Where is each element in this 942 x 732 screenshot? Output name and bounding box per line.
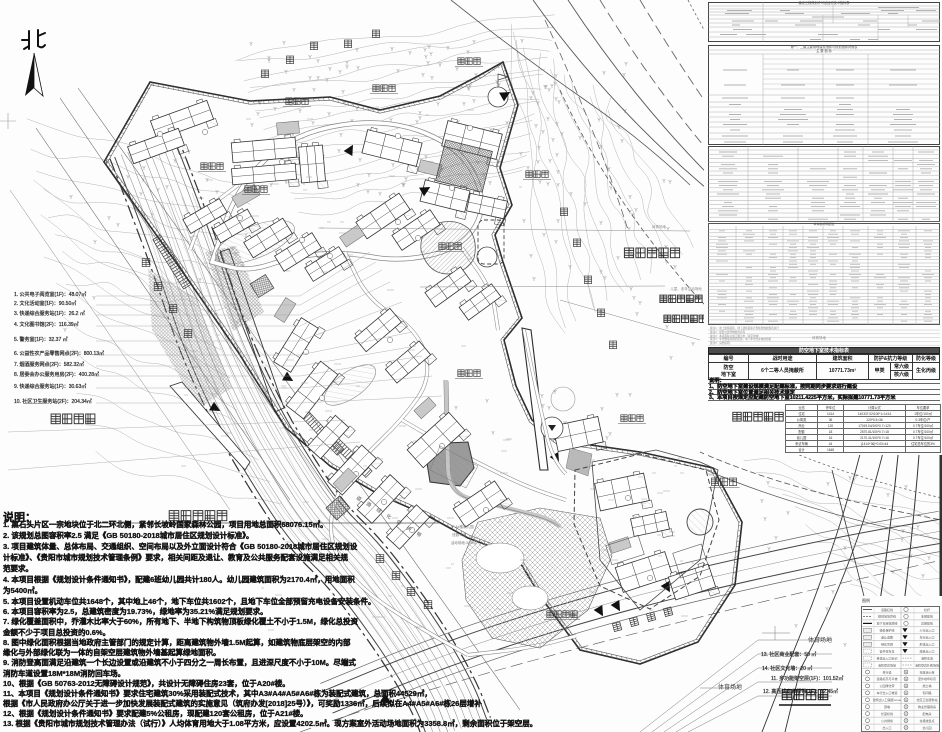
- svg-text:人行出入口: 人行出入口: [919, 628, 934, 633]
- svg-text:G: G: [905, 692, 907, 695]
- svg-text:道路标高与平坡: 道路标高与平坡: [876, 676, 897, 681]
- svg-text:G: G: [905, 713, 907, 716]
- svg-text:长度标线: 长度标线: [881, 711, 893, 716]
- svg-text:体育场地: 体育场地: [718, 683, 742, 691]
- svg-text:建筑出入口: 建筑出入口: [919, 648, 934, 653]
- svg-text:规划地块界线: 规划地块界线: [878, 614, 896, 619]
- svg-text:活动场地:3400㎡: 活动场地:3400㎡: [451, 540, 478, 545]
- svg-text:G: G: [905, 706, 907, 709]
- svg-text:出入口: 出入口: [882, 725, 891, 730]
- svg-text:G: G: [905, 678, 907, 681]
- svg-text:垃圾收集点: 垃圾收集点: [919, 718, 934, 723]
- svg-text:室外地坪标高: 室外地坪标高: [918, 676, 936, 681]
- svg-text:儿童、老年活动场地: 儿童、老年活动场地: [670, 286, 702, 291]
- svg-text:市政消火栓: 市政消火栓: [919, 669, 934, 674]
- svg-text:退让道路: 退让道路: [881, 635, 893, 640]
- svg-text:公园绿化带: 公园绿化带: [879, 683, 894, 688]
- svg-text:体育场地: 体育场地: [808, 636, 832, 644]
- svg-text:挡土墙: 挡土墙: [922, 683, 931, 688]
- svg-text:轻轨保护线: 轻轨保护线: [879, 628, 894, 633]
- svg-text:多层建筑: 多层建筑: [921, 614, 933, 619]
- svg-text:公共绿㊙: 公共绿㊙: [881, 718, 893, 723]
- svg-text:窗井停车位: 窗井停车位: [879, 648, 894, 653]
- svg-text:围墙: 围墙: [884, 704, 890, 709]
- svg-text:道路红线: 道路红线: [881, 607, 893, 612]
- svg-text:体育场地: 体育场地: [652, 224, 666, 229]
- svg-text:社区卫生服务站: 社区卫生服务站: [916, 697, 937, 702]
- svg-text:车行出入口: 车行出入口: [919, 635, 934, 640]
- svg-text:车行出入口坡道: 车行出入口坡道: [876, 690, 897, 695]
- svg-text:带: 带: [415, 531, 422, 539]
- svg-text:班数:6班: 班数:6班: [452, 532, 466, 537]
- svg-text:消防车道: 消防车道: [921, 655, 933, 660]
- svg-text:配电房: 配电房: [922, 711, 931, 716]
- svg-text:绿化景观: 绿化景观: [881, 642, 893, 647]
- svg-text:消防登高场地: 消防登高场地: [878, 662, 896, 667]
- svg-text:宅间路: 宅间路: [922, 690, 931, 695]
- svg-text:2F A#楼幼儿园: 2F A#楼幼儿园: [450, 524, 474, 529]
- svg-text:建筑出入口铺装площ: 建筑出入口铺装площ: [873, 697, 902, 702]
- svg-text:G: G: [905, 699, 907, 702]
- svg-text:化: 化: [385, 512, 393, 521]
- svg-text:消防登高扑救场地: 消防登高扑救场地: [915, 662, 939, 667]
- svg-text:物业管理用房: 物业管理用房: [918, 704, 936, 709]
- svg-text:G: G: [905, 720, 907, 723]
- svg-text:单体出入口标识: 单体出入口标识: [876, 655, 897, 660]
- svg-text:栏杆: 栏杆: [924, 607, 930, 612]
- svg-text:高层建筑: 高层建筑: [921, 621, 933, 626]
- svg-text:G: G: [905, 685, 907, 688]
- svg-text:G: G: [905, 727, 907, 730]
- svg-text:幼儿园: 幼儿园: [922, 725, 931, 730]
- svg-text:形体出入口: 形体出入口: [919, 642, 934, 647]
- svg-text:車行道: 車行道: [882, 669, 891, 674]
- svg-text:地下车库轮廓线: 地下车库轮廓线: [876, 621, 897, 626]
- svg-text:G: G: [905, 671, 907, 674]
